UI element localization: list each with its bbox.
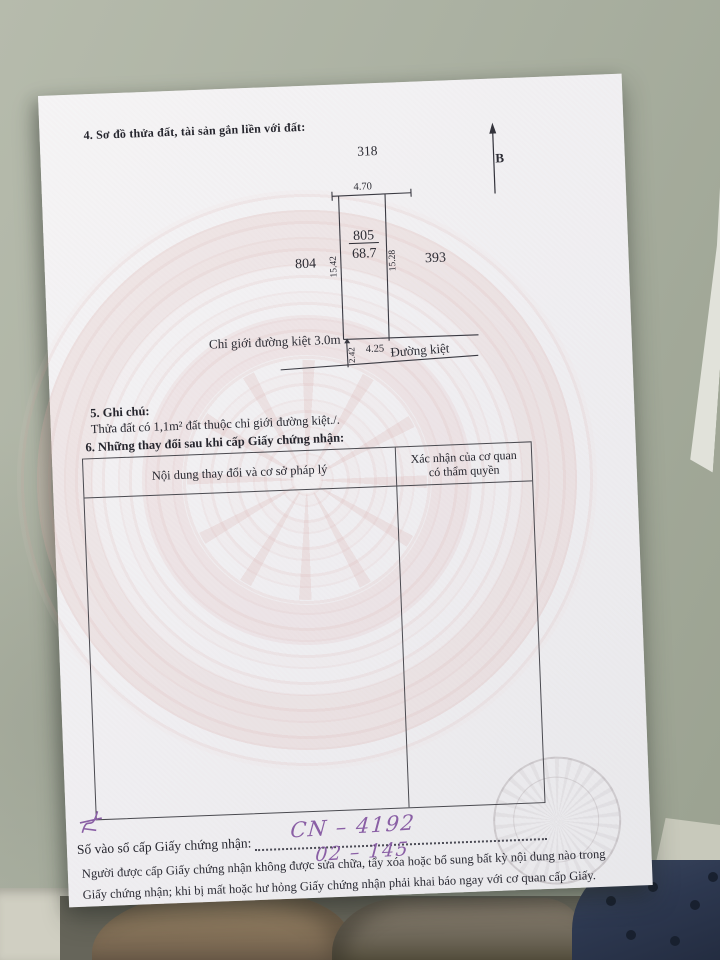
dim-top: 4.70 — [353, 181, 372, 193]
parcel-right-label: 393 — [425, 250, 447, 266]
dim-right: 15.28 — [388, 249, 399, 271]
gray-shoe — [332, 898, 582, 960]
dim-setback: 2.42 — [346, 347, 357, 363]
boundary-label: Chỉ giới đường kiệt 3.0m — [209, 332, 341, 352]
col-header-authority-line2: có thẩm quyền — [429, 463, 500, 480]
changes-table-body — [84, 481, 544, 819]
sandal-hole — [670, 936, 680, 946]
parcel-area: 68.7 — [352, 246, 377, 262]
sandal-hole — [606, 896, 616, 906]
section5-heading: 5. Ghi chú: — [90, 404, 150, 421]
authority-cell-empty — [397, 481, 544, 807]
north-label: B — [495, 150, 505, 165]
changes-table: Nội dung thay đổi và cơ sở pháp lý Xác n… — [82, 441, 546, 820]
sandal-hole — [690, 900, 700, 910]
photo-scene: 4. Sơ đồ thửa đất, tài sản gắn liền với … — [0, 0, 720, 960]
dim-left: 15.42 — [329, 256, 340, 278]
changes-cell-empty — [84, 486, 409, 819]
parcel-number: 805 — [353, 228, 375, 244]
parcel-top-label: 318 — [357, 143, 378, 159]
sandal-hole — [708, 872, 718, 882]
sandal-hole — [626, 930, 636, 940]
handwritten-initial — [77, 808, 106, 837]
col-header-authority: Xác nhận của cơ quan có thẩm quyền — [396, 442, 532, 485]
road-label: Đường kiệt — [390, 340, 450, 359]
dim-frontage: 4.25 — [366, 343, 385, 355]
parcel-diagram: B 318 4.70 15.42 15.28 4.25 2.42 80 — [159, 118, 519, 386]
parcel-left-label: 804 — [295, 256, 317, 272]
certificate-page: 4. Sơ đồ thửa đất, tài sản gắn liền với … — [38, 74, 653, 908]
